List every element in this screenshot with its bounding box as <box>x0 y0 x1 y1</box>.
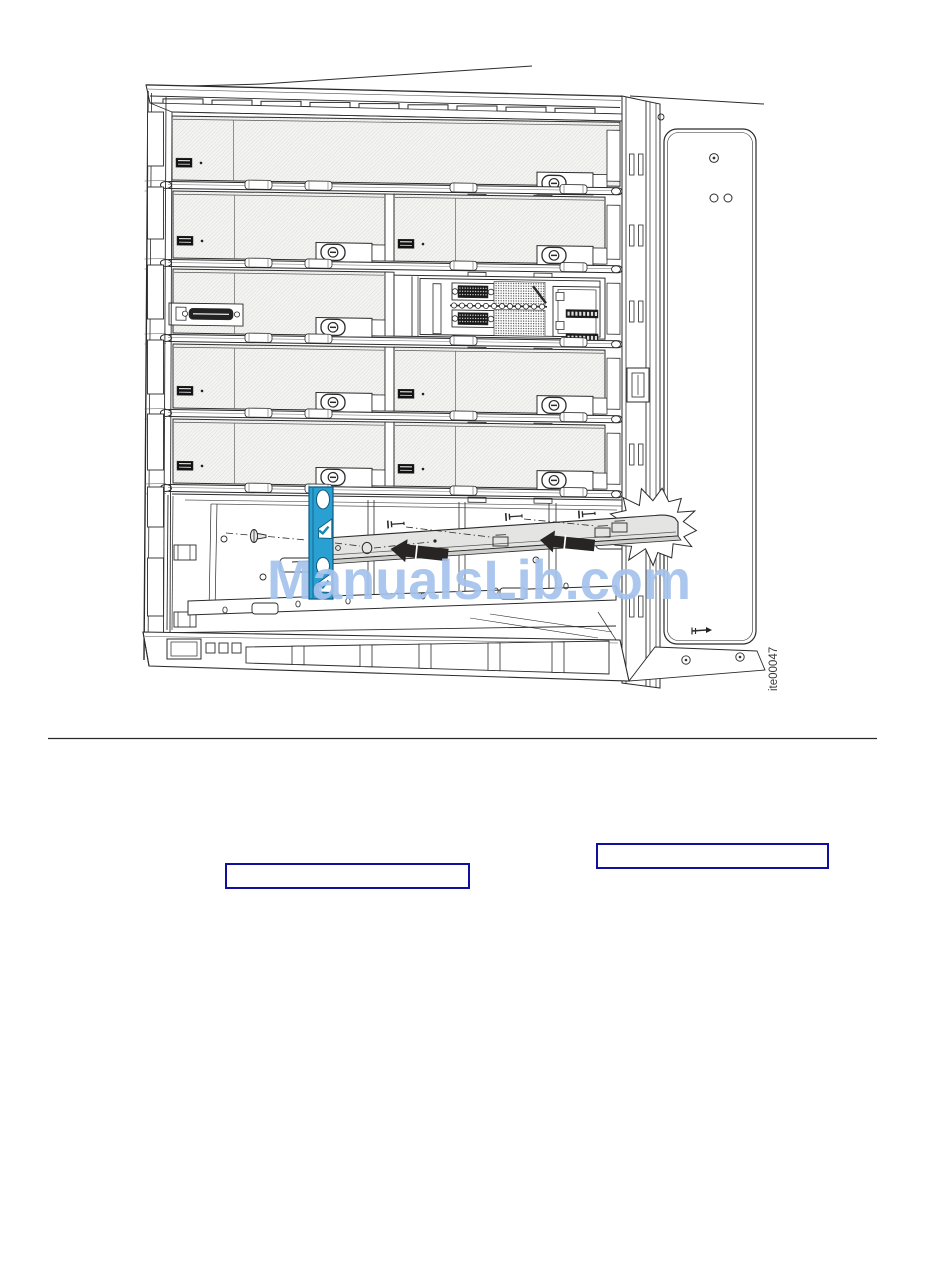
svg-text:ite00047: ite00047 <box>768 647 780 691</box>
svg-text:ManualsLib.com: ManualsLib.com <box>267 549 691 611</box>
